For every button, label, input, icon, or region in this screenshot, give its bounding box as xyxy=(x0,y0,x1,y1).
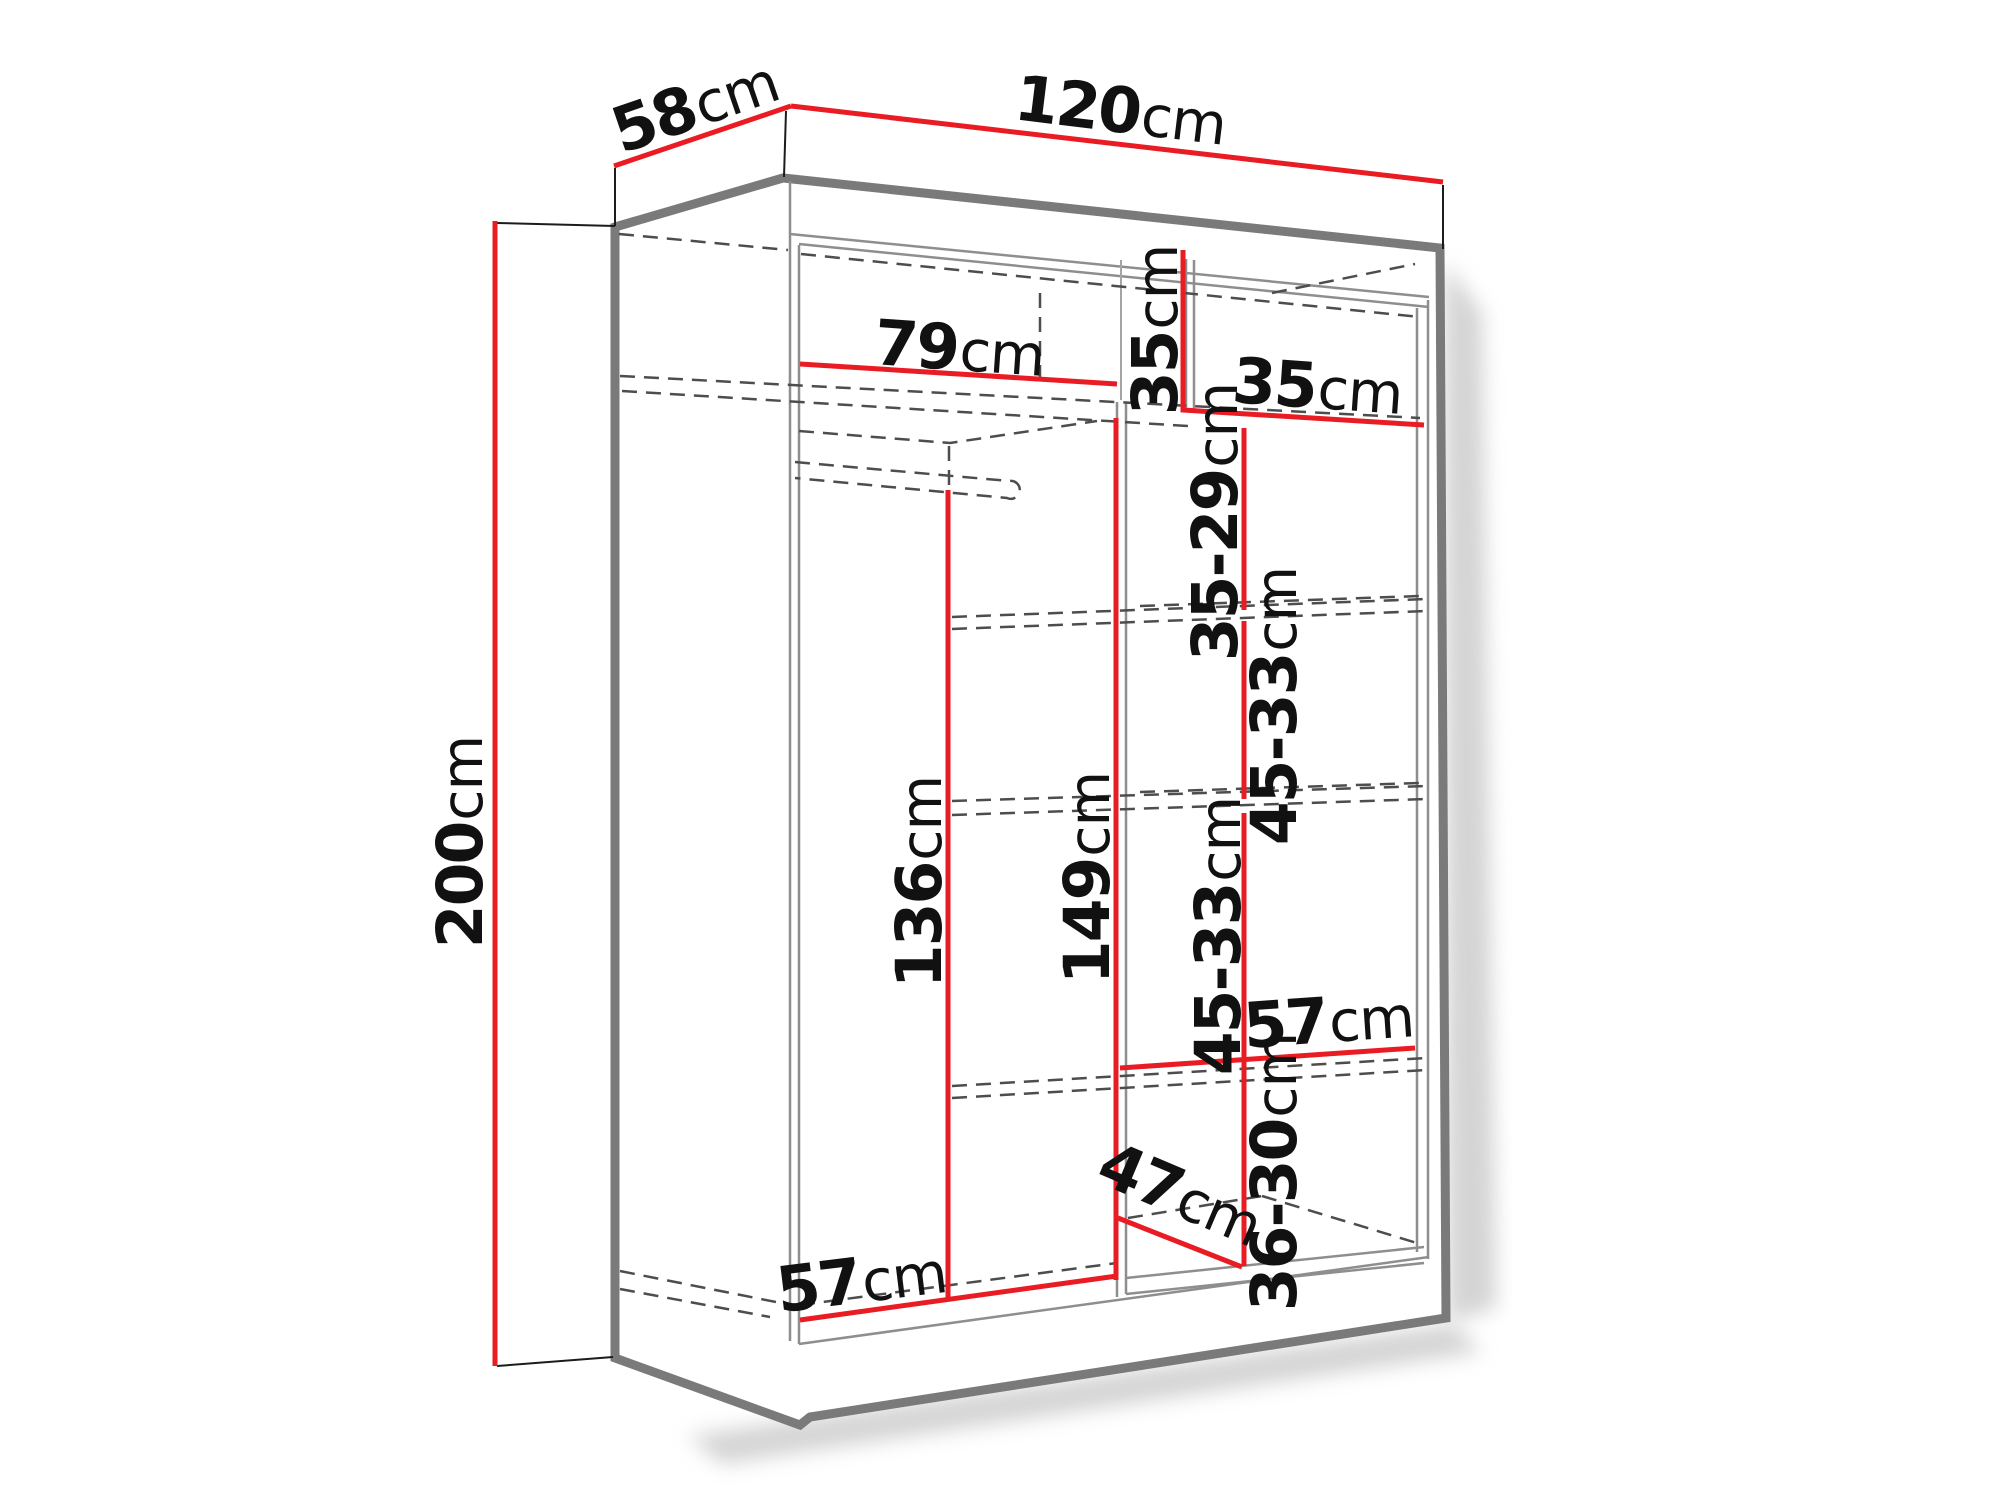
shelf-gap-4-label: 36-30cm xyxy=(1238,1033,1311,1311)
depth-label: 58cm xyxy=(602,43,787,168)
height-bottom-tick xyxy=(497,1357,613,1366)
right-shadow xyxy=(1444,262,1496,1322)
shelf-width-label: 57cm xyxy=(1241,978,1416,1063)
wardrobe-dimension-diagram: 58cm 120cm 200cm 79cm 35cm 35cm 35-29cm … xyxy=(0,0,2000,1500)
divider-height-label: 149cm xyxy=(1051,772,1124,984)
diagram-canvas: 58cm 120cm 200cm 79cm 35cm 35cm 35-29cm … xyxy=(0,0,2000,1500)
apex-extension-line xyxy=(784,111,786,177)
shelf-gap-1-label: 35-29cm xyxy=(1179,383,1252,661)
hanging-height-label: 136cm xyxy=(883,776,956,988)
top-cubby-height-label: 35cm xyxy=(1119,245,1192,416)
width-label: 120cm xyxy=(1011,61,1231,159)
height-label: 200cm xyxy=(424,736,497,948)
height-top-tick xyxy=(497,223,615,226)
